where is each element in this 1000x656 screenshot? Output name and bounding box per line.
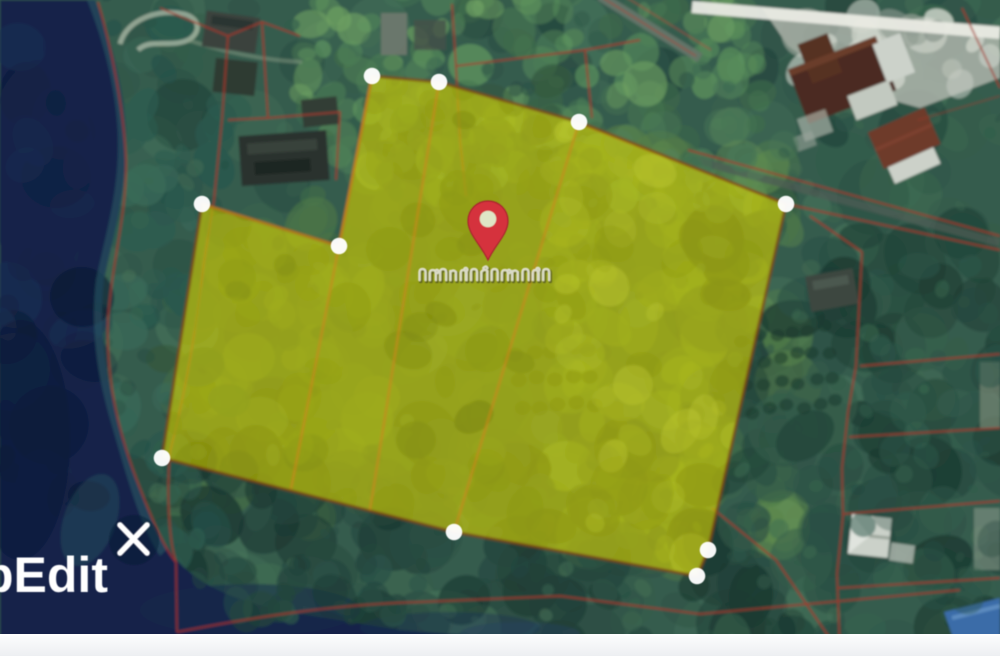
svg-text:bEdit: bEdit — [0, 547, 108, 603]
